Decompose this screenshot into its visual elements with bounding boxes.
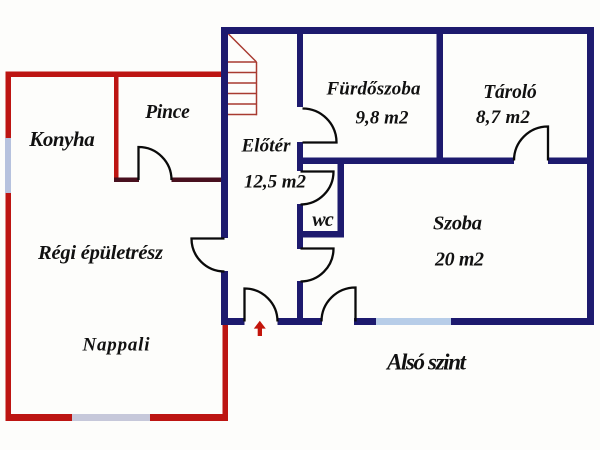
svg-text:9,8 m2: 9,8 m2 — [356, 108, 410, 129]
svg-text:Konyha: Konyha — [28, 127, 95, 151]
svg-text:Régi épületrész: Régi épületrész — [37, 242, 163, 264]
svg-text:8,7 m2: 8,7 m2 — [476, 107, 531, 128]
svg-text:Előtér: Előtér — [241, 136, 292, 157]
svg-text:12,5 m2: 12,5 m2 — [244, 172, 307, 193]
svg-text:wc: wc — [312, 209, 334, 231]
svg-text:Tároló: Tároló — [483, 82, 537, 103]
svg-text:Alsó szint: Alsó szint — [385, 350, 467, 375]
svg-text:Szoba: Szoba — [433, 213, 482, 235]
svg-text:Fürdőszoba: Fürdőszoba — [326, 79, 422, 100]
svg-text:20 m2: 20 m2 — [434, 249, 484, 271]
svg-text:Nappali: Nappali — [82, 335, 151, 356]
svg-text:Pince: Pince — [144, 102, 190, 123]
